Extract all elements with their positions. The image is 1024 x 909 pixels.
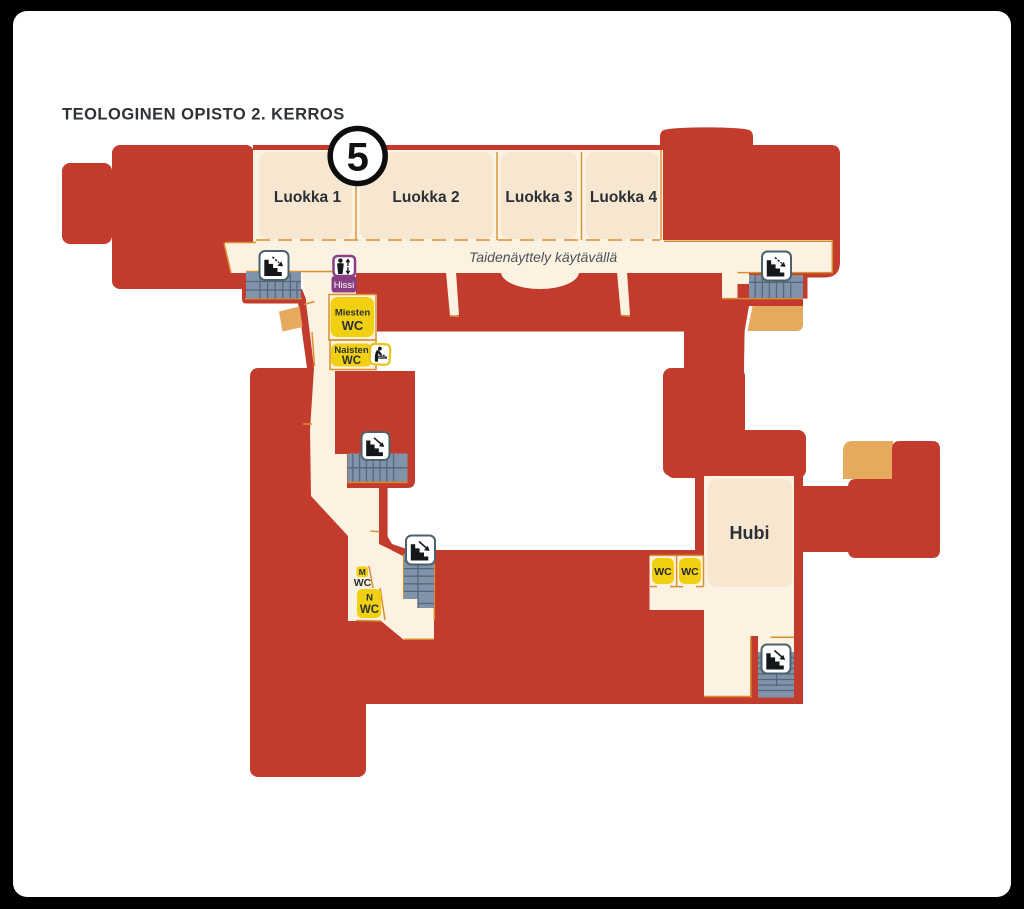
svg-text:Luokka 3: Luokka 3: [505, 189, 573, 206]
svg-text:Miesten: Miesten: [335, 308, 371, 319]
svg-text:WC: WC: [654, 566, 672, 578]
svg-text:N: N: [366, 593, 373, 604]
svg-text:WC: WC: [342, 355, 361, 367]
svg-text:Hissi: Hissi: [334, 280, 355, 291]
svg-text:Hubi: Hubi: [730, 523, 770, 543]
svg-text:Luokka 4: Luokka 4: [590, 189, 658, 206]
svg-text:5: 5: [347, 136, 369, 180]
svg-text:Luokka 2: Luokka 2: [392, 189, 459, 206]
svg-text:WC: WC: [681, 566, 699, 578]
svg-text:WC: WC: [360, 604, 379, 616]
svg-text:M: M: [359, 567, 366, 577]
svg-text:Luokka 1: Luokka 1: [274, 189, 342, 206]
svg-text:Taidenäyttely käytävällä: Taidenäyttely käytävällä: [469, 249, 617, 265]
svg-text:WC: WC: [354, 577, 372, 589]
svg-text:WC: WC: [342, 318, 364, 333]
svg-text:TEOLOGINEN OPISTO 2. KERROS: TEOLOGINEN OPISTO 2. KERROS: [62, 106, 345, 124]
